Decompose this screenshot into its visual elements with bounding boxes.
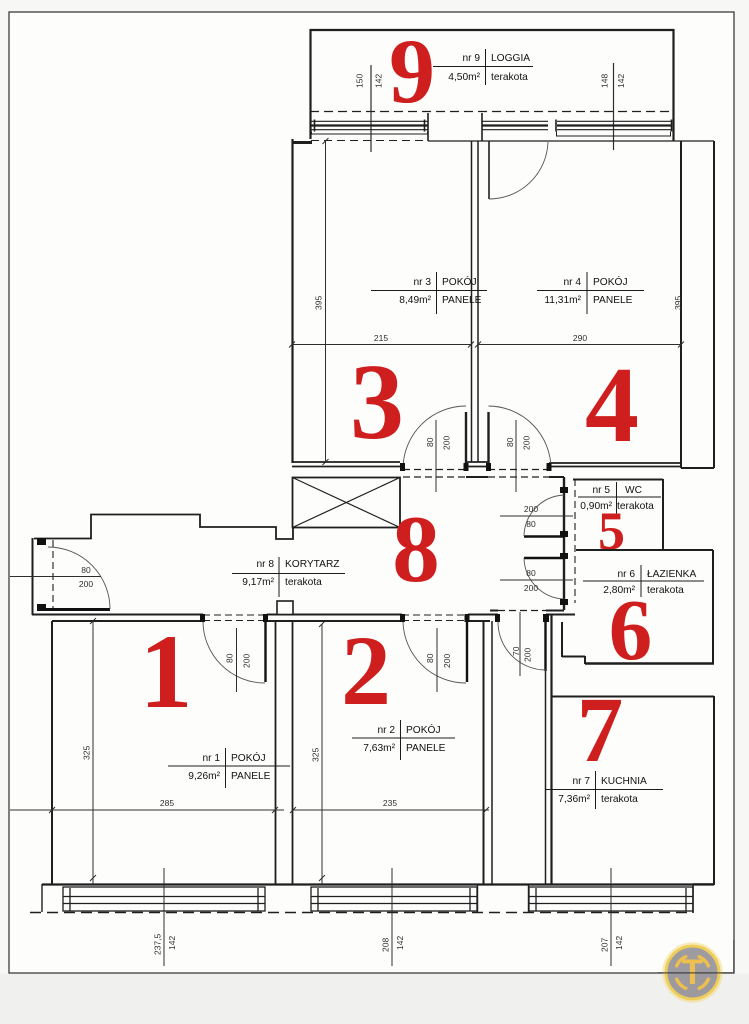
svg-text:POKÓJ: POKÓJ — [406, 723, 441, 736]
svg-text:PANELE: PANELE — [442, 295, 482, 306]
svg-text:nr 6: nr 6 — [617, 569, 635, 580]
svg-text:200: 200 — [442, 436, 452, 450]
svg-text:325: 325 — [82, 746, 92, 760]
svg-text:150: 150 — [355, 74, 365, 88]
svg-text:200: 200 — [442, 654, 452, 668]
svg-text:4,50m²: 4,50m² — [448, 72, 480, 83]
svg-text:237,5: 237,5 — [153, 933, 163, 955]
svg-text:285: 285 — [160, 798, 174, 808]
svg-text:nr 3: nr 3 — [413, 277, 431, 288]
svg-text:80: 80 — [425, 437, 435, 447]
svg-text:142: 142 — [614, 936, 624, 950]
svg-text:207: 207 — [600, 938, 610, 952]
svg-text:terakota: terakota — [285, 577, 322, 588]
svg-text:nr 8: nr 8 — [256, 559, 274, 570]
svg-text:80: 80 — [81, 565, 91, 575]
svg-text:200: 200 — [79, 579, 93, 589]
svg-text:5: 5 — [598, 501, 625, 561]
svg-text:9: 9 — [389, 20, 435, 122]
svg-text:nr 2: nr 2 — [377, 725, 395, 736]
svg-text:PANELE: PANELE — [593, 295, 633, 306]
svg-text:395: 395 — [314, 296, 324, 310]
svg-text:POKÓJ: POKÓJ — [231, 751, 266, 764]
svg-text:80: 80 — [505, 437, 515, 447]
svg-text:KORYTARZ: KORYTARZ — [285, 559, 340, 570]
svg-text:200: 200 — [523, 648, 533, 662]
svg-text:80: 80 — [425, 653, 435, 663]
svg-text:200: 200 — [524, 504, 538, 514]
svg-text:nr 5: nr 5 — [592, 485, 610, 496]
svg-text:235: 235 — [383, 798, 397, 808]
svg-text:70: 70 — [511, 646, 521, 656]
svg-text:nr 1: nr 1 — [202, 753, 220, 764]
svg-text:POKÓJ: POKÓJ — [593, 275, 628, 288]
svg-text:nr 9: nr 9 — [462, 53, 480, 64]
svg-text:148: 148 — [600, 74, 610, 88]
svg-text:200: 200 — [522, 436, 532, 450]
svg-text:terakota: terakota — [601, 794, 638, 805]
svg-text:8,49m²: 8,49m² — [399, 295, 431, 306]
svg-text:4: 4 — [585, 346, 639, 465]
svg-text:200: 200 — [242, 654, 252, 668]
svg-text:200: 200 — [524, 583, 538, 593]
svg-text:3: 3 — [350, 343, 404, 462]
svg-text:2: 2 — [341, 615, 391, 726]
svg-text:80: 80 — [225, 653, 235, 663]
svg-text:terakota: terakota — [491, 72, 528, 83]
svg-text:80: 80 — [526, 519, 536, 529]
svg-text:208: 208 — [381, 938, 391, 952]
svg-text:290: 290 — [573, 333, 587, 343]
svg-text:LOGGIA: LOGGIA — [491, 53, 530, 64]
svg-text:WC: WC — [625, 485, 642, 496]
svg-text:9,17m²: 9,17m² — [242, 577, 274, 588]
svg-text:6: 6 — [609, 581, 653, 678]
svg-text:7: 7 — [577, 679, 624, 782]
svg-text:11,31m²: 11,31m² — [544, 295, 581, 306]
svg-text:142: 142 — [395, 936, 405, 950]
svg-text:PANELE: PANELE — [231, 771, 271, 782]
svg-text:ŁAZIENKA: ŁAZIENKA — [647, 569, 696, 580]
svg-text:215: 215 — [374, 333, 388, 343]
svg-text:POKÓJ: POKÓJ — [442, 275, 477, 288]
svg-text:7,36m²: 7,36m² — [558, 794, 590, 805]
svg-text:8: 8 — [392, 496, 440, 602]
svg-text:142: 142 — [616, 74, 626, 88]
svg-text:9,26m²: 9,26m² — [188, 771, 220, 782]
svg-text:7,63m²: 7,63m² — [363, 743, 395, 754]
svg-text:325: 325 — [311, 748, 321, 762]
svg-text:1: 1 — [140, 613, 193, 730]
svg-text:142: 142 — [167, 936, 177, 950]
svg-text:142: 142 — [374, 74, 384, 88]
svg-text:395: 395 — [673, 296, 683, 310]
svg-text:PANELE: PANELE — [406, 743, 446, 754]
svg-text:nr 4: nr 4 — [563, 277, 581, 288]
svg-text:terakota: terakota — [647, 585, 684, 596]
svg-text:80: 80 — [526, 568, 536, 578]
